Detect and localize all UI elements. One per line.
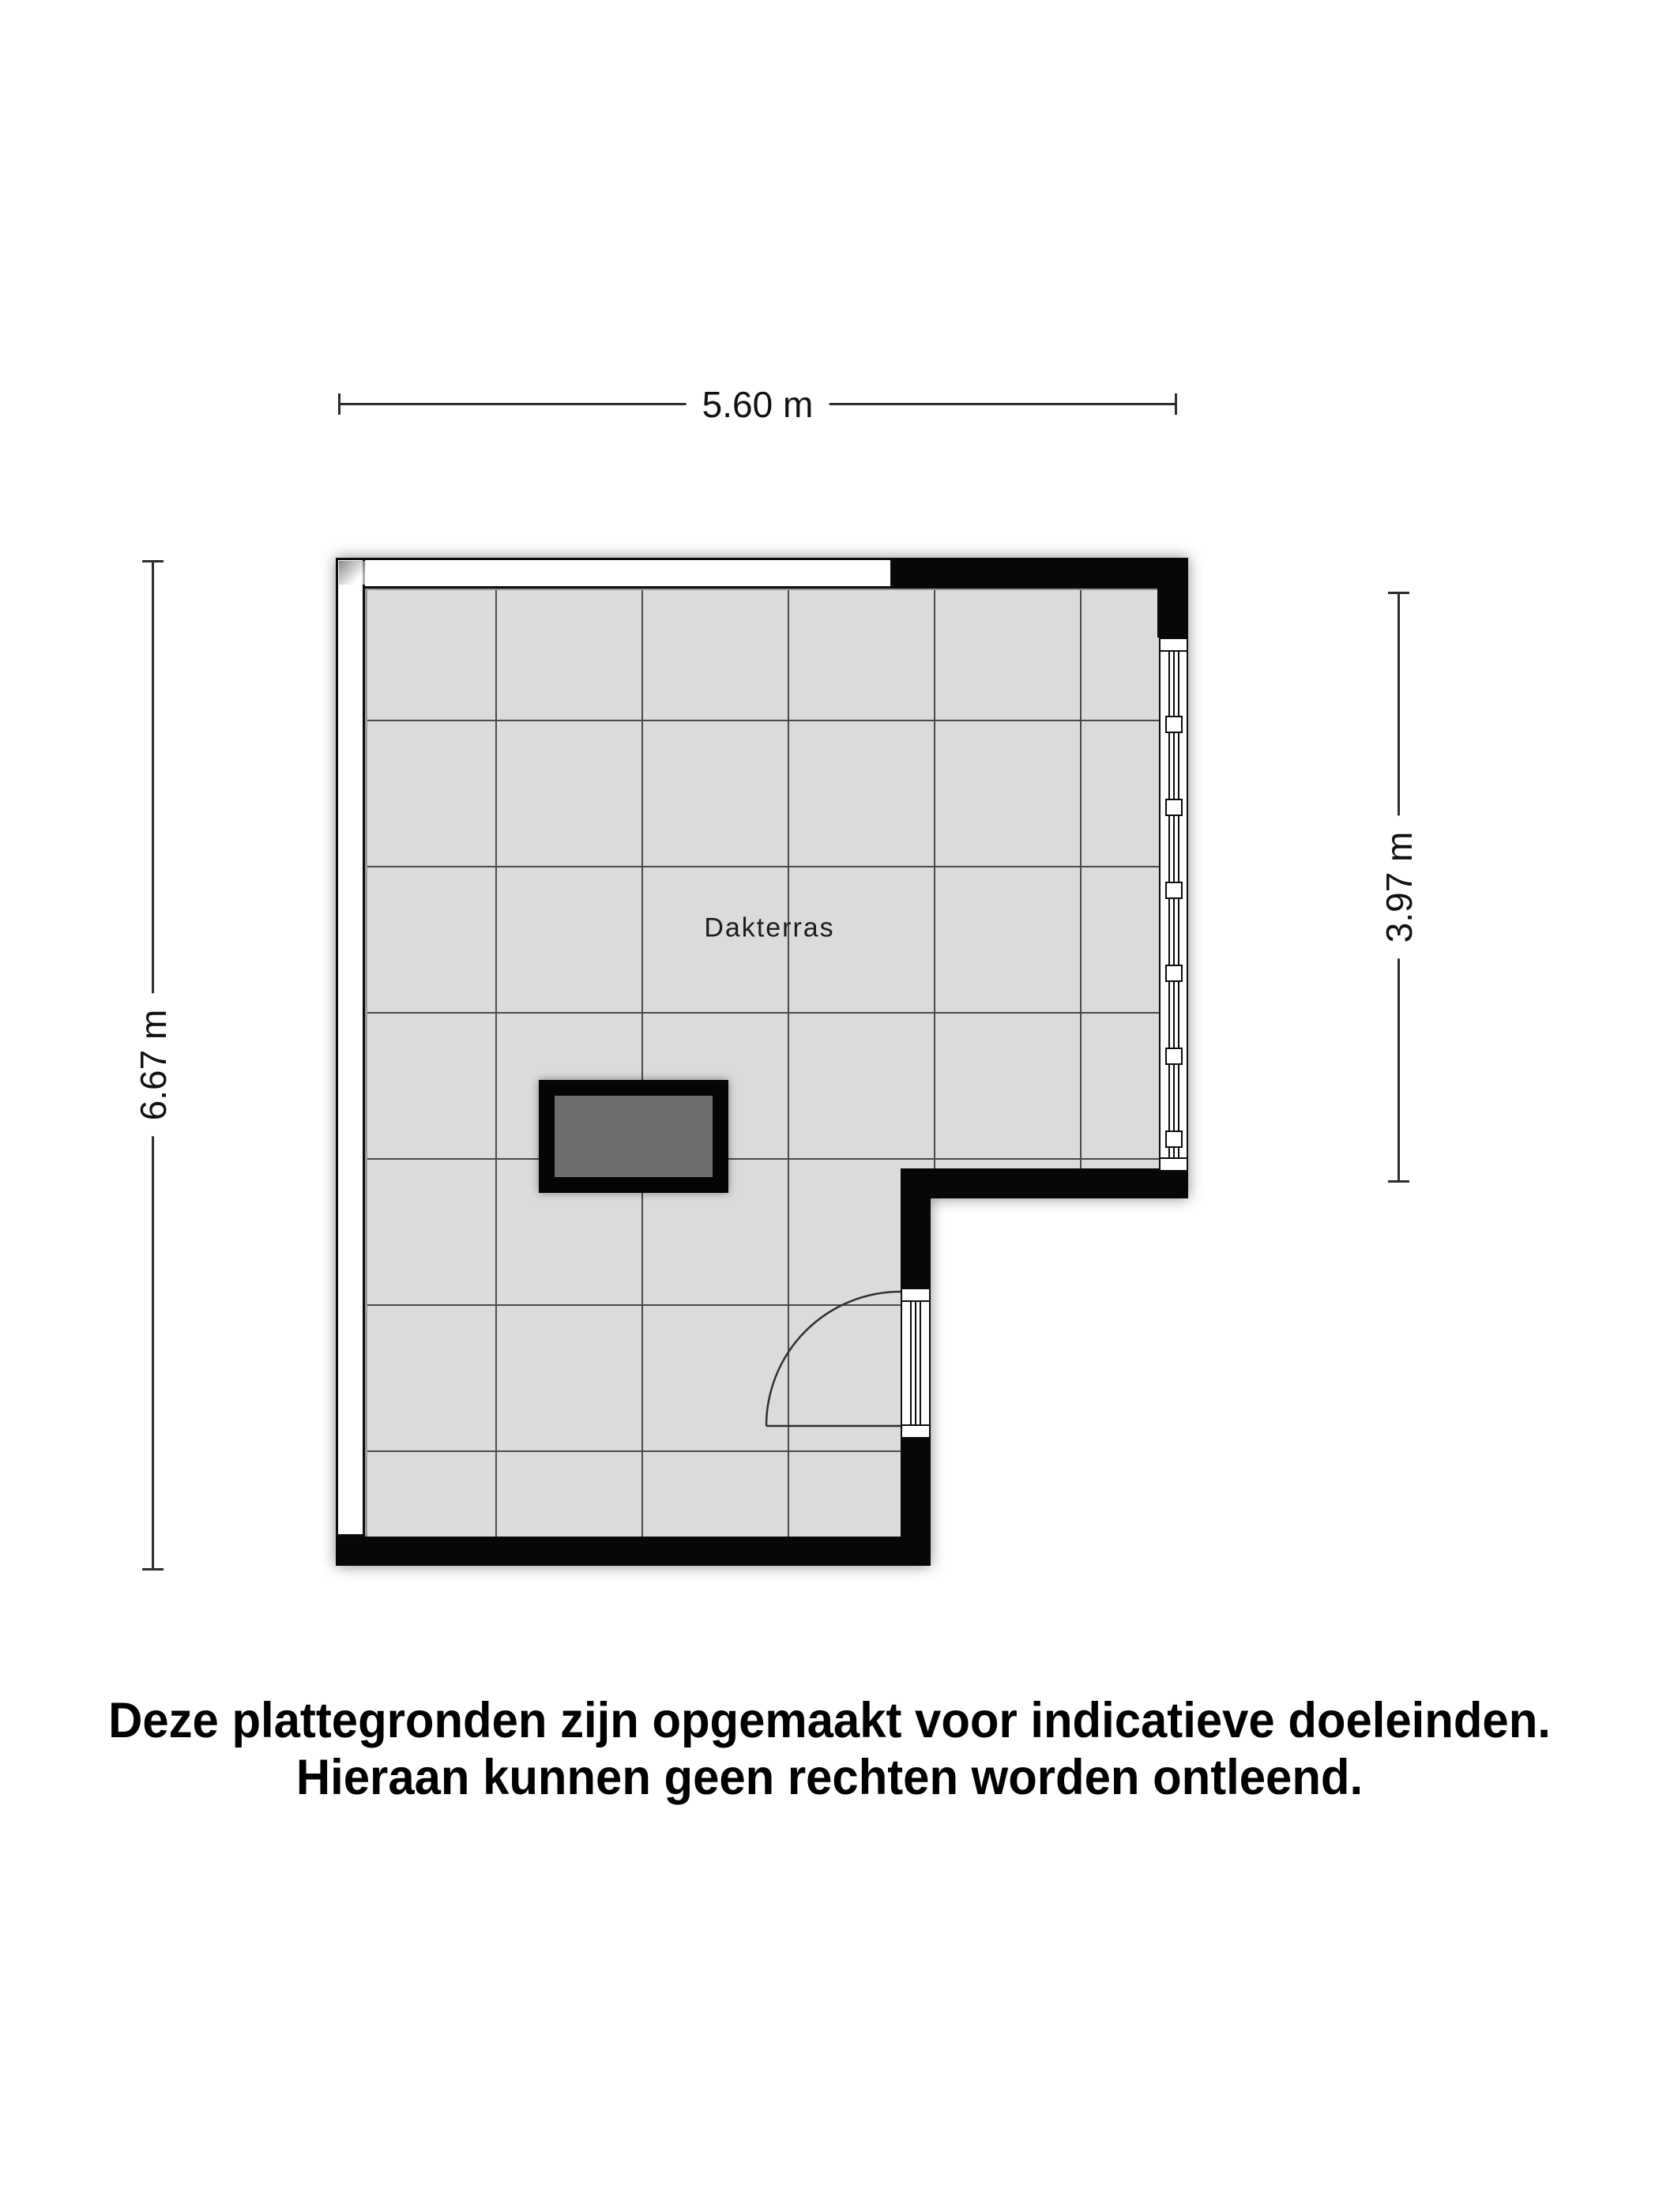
door-swing — [336, 558, 1188, 1566]
dimension-top-tick-right — [1175, 393, 1177, 415]
dimension-right-tick-bottom — [1388, 1180, 1409, 1183]
door-swing-arc — [766, 1292, 901, 1426]
floorplan-canvas: 5.60 m 6.67 m 3.97 m — [0, 0, 1659, 2212]
dimension-left-tick-top — [142, 560, 164, 562]
dimension-top-tick-left — [338, 393, 340, 415]
dimension-left-label: 6.67 m — [132, 994, 175, 1137]
dimension-left-tick-bottom — [142, 1568, 164, 1571]
disclaimer-line-2: Hieraan kunnen geen rechten worden ontle… — [42, 1749, 1618, 1806]
dimension-right-tick-top — [1388, 592, 1409, 594]
disclaimer: Deze plattegronden zijn opgemaakt voor i… — [42, 1692, 1618, 1806]
room-label: Dakterras — [704, 913, 834, 944]
floor-plan: Dakterras — [336, 558, 1188, 1566]
dimension-top-label: 5.60 m — [687, 383, 829, 426]
disclaimer-line-1: Deze plattegronden zijn opgemaakt voor i… — [42, 1692, 1618, 1749]
dimension-right-label: 3.97 m — [1378, 816, 1420, 959]
skylight — [539, 1080, 728, 1193]
